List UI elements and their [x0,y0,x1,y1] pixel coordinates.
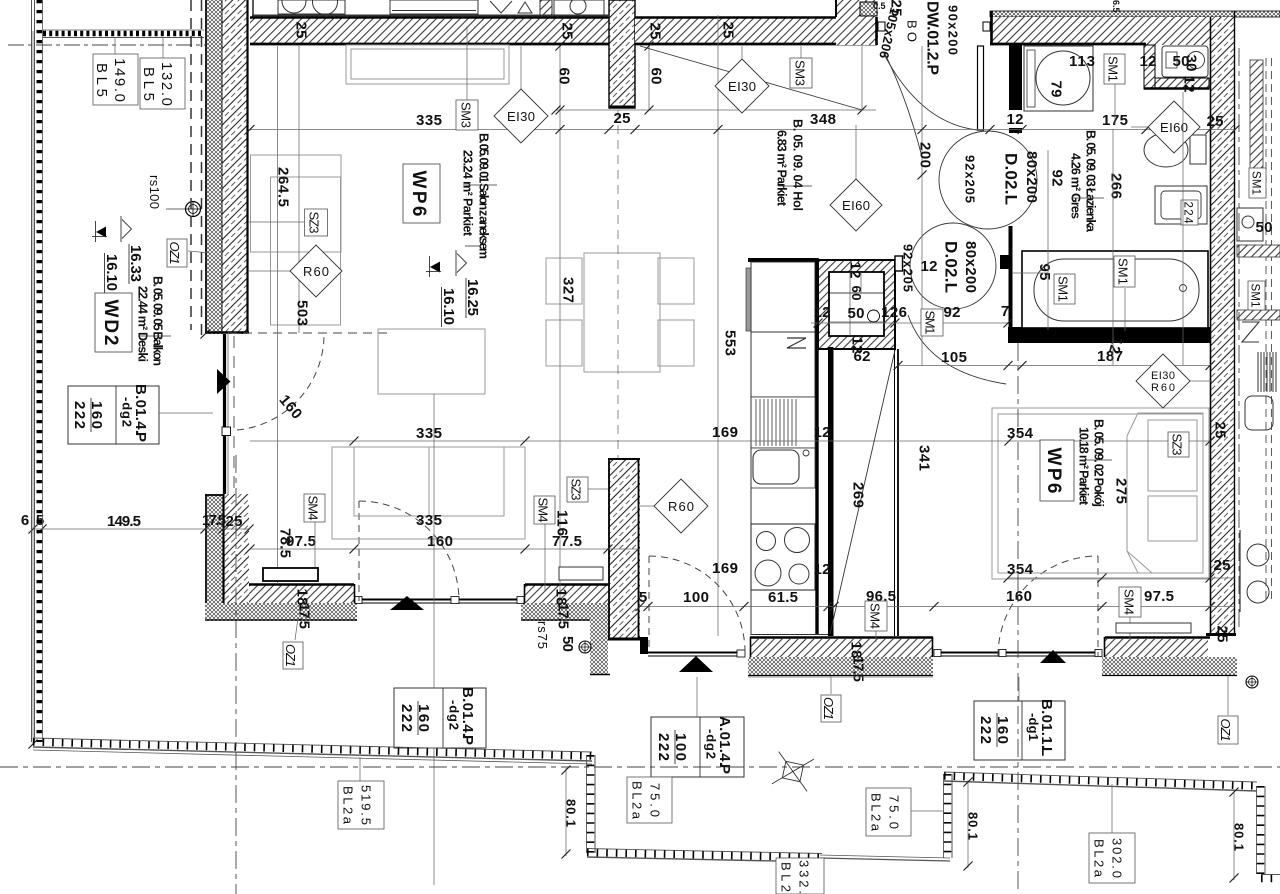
svg-text:B. 05. 09. 01 Salon z aneksem: B. 05. 09. 01 Salon z aneksem [477,133,491,259]
svg-text:80x200: 80x200 [962,241,979,293]
svg-text:92: 92 [1049,170,1066,187]
svg-text:335: 335 [416,512,442,529]
svg-text:75.0: 75.0 [648,783,663,817]
svg-text:16.25: 16.25 [464,279,481,316]
svg-text:R60: R60 [668,499,694,514]
svg-text:519.5: 519.5 [359,785,374,825]
svg-text:97.5: 97.5 [1144,588,1174,605]
svg-text:B. 05. 09. 02 Pokój: B. 05. 09. 02 Pokój [1092,419,1106,507]
svg-text:25: 25 [559,23,576,40]
svg-text:4.26 m² Gres: 4.26 m² Gres [1069,153,1083,219]
svg-text:17.5: 17.5 [555,603,572,629]
svg-text:SM4: SM4 [1122,589,1137,615]
svg-text:25: 25 [293,22,310,39]
svg-text:OZ1: OZ1 [283,644,298,667]
svg-text:6.83 m² Parkiet: 6.83 m² Parkiet [775,130,789,207]
svg-text:92x205: 92x205 [963,155,978,203]
svg-text:SM4: SM4 [306,496,321,521]
svg-text:354: 354 [1007,425,1034,442]
svg-text:OZ1: OZ1 [821,697,836,720]
svg-text:17.5: 17.5 [296,603,313,629]
svg-text:116: 116 [554,510,571,536]
svg-text:327: 327 [560,277,577,303]
svg-text:60: 60 [556,68,573,85]
svg-text:6: 6 [21,512,29,529]
svg-text:D.02.L: D.02.L [1002,153,1021,205]
svg-text:160: 160 [427,533,453,550]
svg-text:P: P [459,735,476,745]
svg-text:169: 169 [712,560,738,577]
svg-text:B. 05. 09. 04 Hol: B. 05. 09. 04 Hol [791,119,805,211]
svg-text:12: 12 [1181,76,1198,93]
svg-text:302.0: 302.0 [1110,838,1125,878]
svg-text:0.5: 0.5 [873,1,886,11]
svg-text:25: 25 [226,513,243,530]
svg-text:17.5: 17.5 [850,656,867,682]
svg-text:80.1: 80.1 [564,799,579,827]
svg-text:23.24 m² Parkiet: 23.24 m² Parkiet [461,150,475,237]
svg-text:OZ1: OZ1 [1218,719,1233,742]
svg-text:100: 100 [683,589,709,606]
svg-text:16.33: 16.33 [127,245,144,282]
svg-text:SM4: SM4 [536,498,551,523]
svg-text:SZ3: SZ3 [569,479,584,501]
svg-text:12: 12 [814,304,831,321]
svg-text:79: 79 [1048,81,1065,98]
svg-text:SZ3: SZ3 [307,212,322,234]
svg-text:80.1: 80.1 [966,812,981,840]
svg-text:BO: BO [905,20,920,42]
svg-text:132.0: 132.0 [158,62,175,106]
svg-text:25: 25 [1212,422,1229,439]
svg-text:EI60: EI60 [842,198,870,213]
svg-text:WP6: WP6 [1043,448,1064,494]
svg-text:50: 50 [1256,219,1273,236]
svg-text:rs75: rs75 [535,621,550,649]
svg-text:50: 50 [848,305,865,322]
svg-text:SM1: SM1 [1250,171,1262,195]
svg-text:12: 12 [814,424,831,441]
svg-text:25: 25 [720,22,737,39]
svg-text:6.5: 6.5 [1111,0,1121,13]
svg-text:222: 222 [655,733,672,761]
svg-text:61.5: 61.5 [768,589,798,606]
svg-text:80.1: 80.1 [1232,823,1247,851]
svg-text:92x205: 92x205 [901,244,916,292]
svg-text:B. 05. 09. 05 Balkon: B. 05. 09. 05 Balkon [151,276,165,366]
svg-text:SM1: SM1 [1116,258,1131,285]
svg-text:25: 25 [647,23,664,40]
svg-text:503: 503 [294,300,311,326]
svg-text:224: 224 [1182,202,1194,225]
svg-text:222: 222 [71,401,88,429]
svg-text:75.0: 75.0 [887,795,902,829]
svg-text:50: 50 [559,636,576,652]
svg-text:OZ1: OZ1 [167,242,182,265]
svg-text:16.10: 16.10 [103,254,120,291]
svg-text:60: 60 [648,68,665,85]
svg-text:12: 12 [847,262,864,279]
svg-text:78.5: 78.5 [277,528,294,558]
svg-text:5: 5 [639,589,647,606]
svg-text:25: 25 [614,110,631,127]
svg-text:10.18 m² Parkiet: 10.18 m² Parkiet [1077,427,1091,506]
svg-text:BL2: BL2 [779,862,794,892]
svg-text:222: 222 [398,704,415,732]
svg-text:12: 12 [814,561,831,578]
svg-text:R60: R60 [303,264,329,279]
svg-text:-dg2: -dg2 [447,700,462,730]
svg-text:B. 05. 09. 03 Łazienka: B. 05. 09. 03 Łazienka [1084,130,1098,233]
svg-text:16.10: 16.10 [440,288,457,325]
svg-text:R60: R60 [1151,382,1175,394]
svg-text:149.5: 149.5 [107,513,141,530]
svg-text:D.02.L: D.02.L [942,241,961,293]
svg-text:SZ3: SZ3 [1170,434,1185,456]
svg-text:WD2: WD2 [100,300,121,346]
svg-text:SM3: SM3 [459,102,474,128]
svg-text:354: 354 [1007,561,1034,578]
svg-text:BL5: BL5 [140,67,157,101]
svg-text:SM1: SM1 [1106,56,1121,82]
svg-text:126: 126 [881,304,907,321]
svg-text:25: 25 [1214,557,1231,574]
svg-text:SM3: SM3 [793,60,808,86]
svg-text:P: P [132,432,149,442]
svg-text:SM1: SM1 [923,311,938,335]
svg-text:266: 266 [1108,173,1125,199]
svg-text:WP6: WP6 [408,171,429,217]
svg-text:-dg2: -dg2 [120,397,135,427]
svg-text:275: 275 [1113,478,1130,504]
svg-text:95: 95 [1036,264,1053,281]
svg-text:113: 113 [1069,53,1095,70]
svg-text:169: 169 [712,424,738,441]
svg-text:22.44 m² Deski: 22.44 m² Deski [136,286,150,362]
svg-text:12: 12 [1140,53,1157,70]
svg-text:25: 25 [1214,626,1231,643]
svg-text:EI30: EI30 [1151,370,1175,382]
svg-text:17.5: 17.5 [202,512,226,529]
svg-text:200: 200 [917,142,934,168]
svg-text:335: 335 [416,112,442,129]
svg-text:12: 12 [921,258,938,275]
svg-text:80x200: 80x200 [1023,151,1040,203]
svg-text:EI30: EI30 [507,109,535,124]
svg-text:60: 60 [849,286,864,301]
svg-text:-dg2: -dg2 [704,729,719,759]
svg-text:269: 269 [850,482,867,508]
svg-text:7: 7 [1001,303,1009,320]
svg-text:25: 25 [1207,113,1224,130]
svg-text:DW.01.2.P: DW.01.2.P [923,1,940,75]
svg-text:553: 553 [722,330,739,356]
svg-text:rs100: rs100 [147,175,162,209]
svg-text:30: 30 [1183,55,1200,72]
svg-text:348: 348 [810,111,836,128]
svg-text:-dg1: -dg1 [1026,713,1041,741]
svg-text:L: L [1038,747,1055,756]
svg-text:222: 222 [977,716,994,744]
svg-text:12: 12 [849,337,866,354]
svg-text:92: 92 [944,304,961,321]
svg-text:SM1: SM1 [1249,284,1261,308]
svg-text:105: 105 [941,349,967,366]
svg-text:P: P [716,764,733,774]
svg-text:BL5: BL5 [93,63,110,97]
svg-text:SM4: SM4 [868,603,883,629]
svg-text:335: 335 [416,425,442,442]
svg-text:12: 12 [1007,111,1024,128]
svg-text:EI30: EI30 [728,79,756,94]
svg-text:149.0: 149.0 [111,58,128,102]
svg-text:341: 341 [916,445,933,471]
svg-text:160: 160 [1006,588,1032,605]
svg-text:SM1: SM1 [1056,276,1071,302]
svg-text:264.5: 264.5 [275,167,292,207]
svg-text:EI60: EI60 [1160,120,1188,135]
